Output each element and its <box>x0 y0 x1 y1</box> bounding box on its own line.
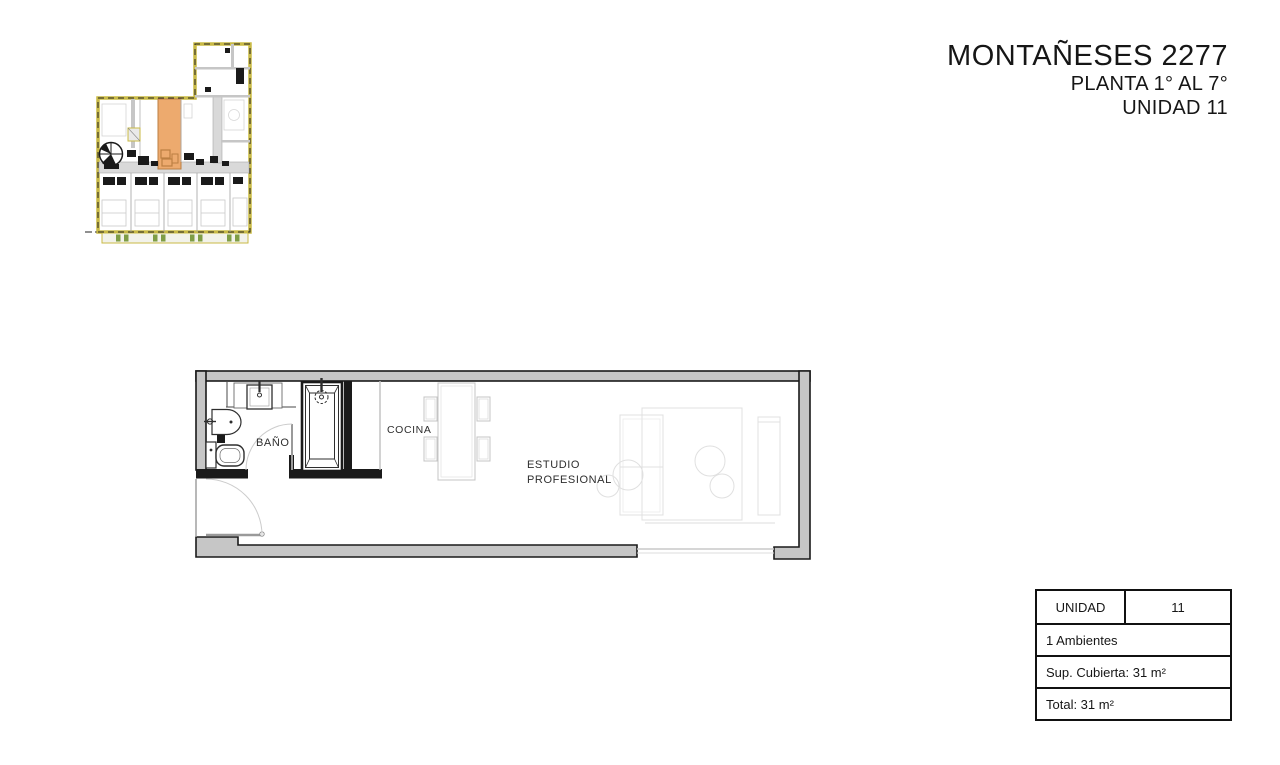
unit-subtitle: UNIDAD 11 <box>947 96 1228 120</box>
ambientes-row: 1 Ambientes <box>1037 623 1230 655</box>
sup-cubierta-row: Sup. Cubierta: 31 m² <box>1037 655 1230 687</box>
kitchen-label: COCINA <box>387 424 431 436</box>
project-title: MONTAÑESES 2277 <box>947 40 1228 72</box>
dining-table <box>424 383 490 480</box>
bidet <box>204 410 241 435</box>
bathtub <box>302 378 342 471</box>
floorplan-sheet: { "header": { "title": "MONTAÑESES 2277"… <box>0 0 1280 765</box>
unit-info-table: UNIDAD 11 1 Ambientes Sup. Cubierta: 31 … <box>1035 589 1232 721</box>
floor-subtitle: PLANTA 1° AL 7° <box>947 72 1228 96</box>
sink-vanity <box>234 381 282 409</box>
key-plan <box>80 28 265 253</box>
unit-label-cell: UNIDAD <box>1037 591 1126 623</box>
studio-label-line1: ESTUDIO <box>527 458 612 473</box>
unit-floor-plan <box>190 365 820 570</box>
title-block: MONTAÑESES 2277 PLANTA 1° AL 7° UNIDAD 1… <box>947 40 1228 120</box>
key-plan-balcony-band <box>102 233 248 243</box>
perimeter-walls <box>196 371 810 559</box>
unit-number-cell: 11 <box>1126 591 1230 623</box>
window-opening <box>196 479 775 553</box>
studio-label-line2: PROFESIONAL <box>527 473 612 488</box>
bathroom-label: BAÑO <box>256 437 290 449</box>
studio-label: ESTUDIO PROFESIONAL <box>527 458 612 487</box>
entry-door <box>206 479 264 536</box>
unit-info-header-row: UNIDAD 11 <box>1037 591 1230 623</box>
total-row: Total: 31 m² <box>1037 687 1230 719</box>
toilet <box>206 435 244 468</box>
key-plan-highlighted-unit <box>158 99 181 169</box>
studio-furniture <box>597 408 780 520</box>
